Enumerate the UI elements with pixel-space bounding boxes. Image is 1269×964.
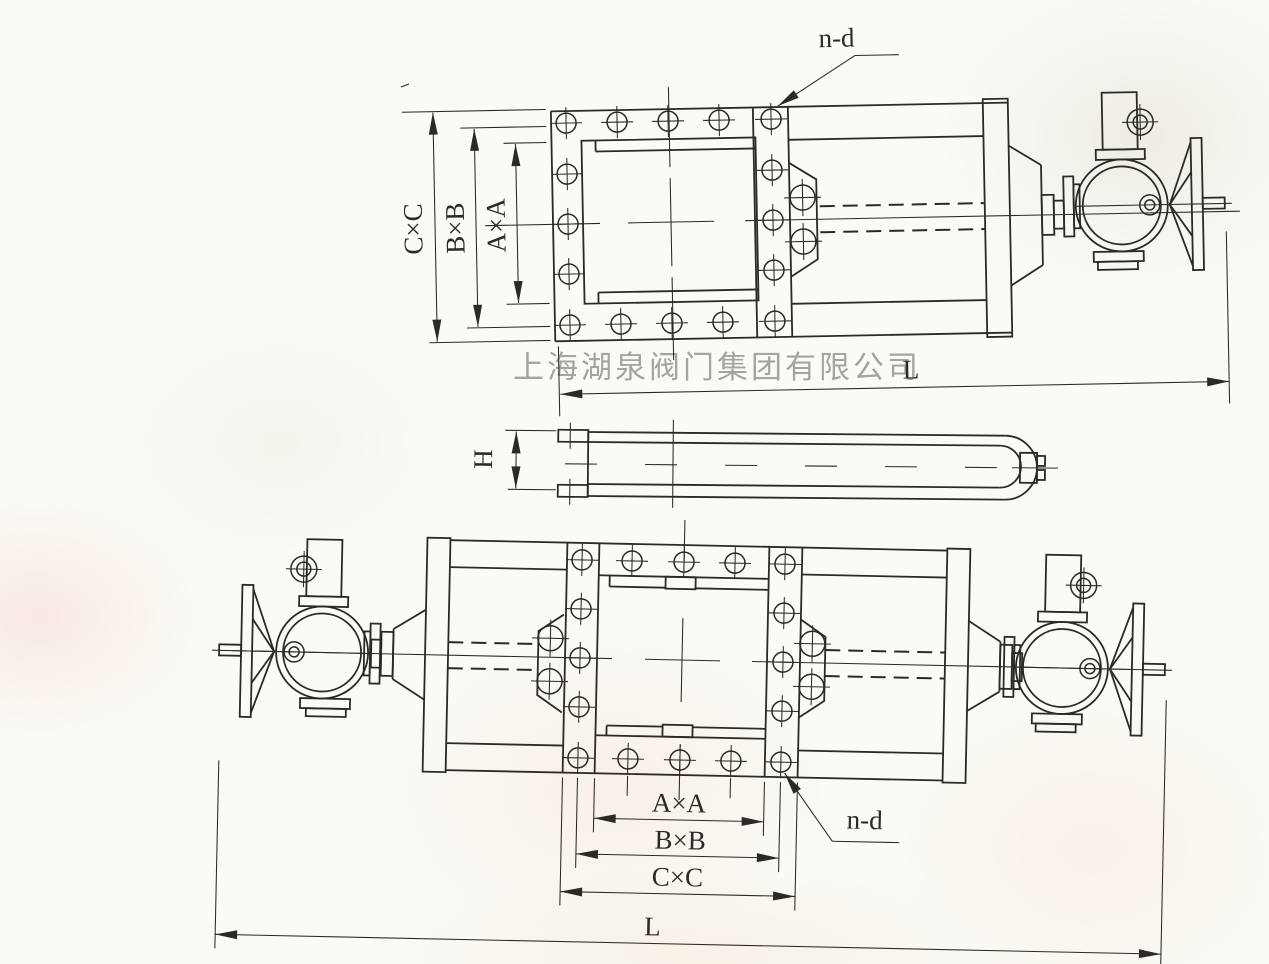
hole-centerline	[568, 208, 569, 240]
hole-centerline	[781, 746, 782, 778]
hole-centerline	[570, 309, 571, 341]
hole-centerline	[785, 548, 786, 580]
arrowhead	[560, 389, 582, 398]
hole-centerline	[569, 258, 570, 290]
dimension-line	[433, 113, 437, 342]
arrowhead	[511, 144, 520, 166]
hole-centerline	[672, 307, 673, 339]
hole-centerline	[773, 204, 774, 236]
dim-label-length-bottom: L	[644, 911, 661, 941]
hole-centerline	[774, 254, 775, 286]
actuator-left	[211, 537, 383, 719]
hole-centerline	[567, 158, 568, 190]
arrowhead	[432, 320, 441, 342]
gate-guide-tab	[665, 577, 695, 590]
hole-centerline	[775, 305, 776, 337]
dim-label-nd-bottom: n-d	[846, 805, 883, 836]
arrowhead	[428, 113, 437, 135]
threaded-stem	[825, 650, 945, 653]
dim-label-aa-top: A×A	[481, 198, 512, 253]
hole-centerline	[731, 745, 732, 777]
dim-label-aa-bottom: A×A	[652, 787, 707, 818]
arrowhead	[511, 466, 520, 488]
arrowhead	[1139, 949, 1161, 958]
hole-centerline	[783, 646, 784, 678]
hole-centerline	[680, 744, 681, 776]
arrowhead	[512, 431, 521, 453]
arrowhead	[757, 853, 779, 862]
hole-centerline	[723, 306, 724, 338]
hole-centerline	[581, 593, 582, 625]
threaded-stem	[448, 668, 538, 670]
gate-side-view: H	[468, 418, 1059, 511]
hole-centerline	[668, 105, 669, 137]
rounded-end-inner	[1000, 446, 1021, 488]
dim-label-height: H	[468, 449, 498, 469]
bolt-holes-bottom-view	[529, 543, 833, 779]
arrowhead	[576, 849, 598, 858]
dimension-line	[515, 144, 518, 303]
actuator-right	[1062, 90, 1233, 272]
bottom-front-view: A×A B×B C×C n-d L	[206, 510, 1175, 964]
hole-centerline	[579, 691, 580, 723]
arrowhead	[1207, 377, 1229, 386]
threaded-stem	[820, 229, 985, 232]
hole-centerline	[735, 547, 736, 579]
arrowhead	[470, 129, 479, 151]
threaded-stem	[448, 642, 538, 644]
scan-artifact	[401, 84, 409, 87]
hole-centerline	[803, 223, 804, 260]
hole-centerline	[632, 545, 633, 577]
hole-centerline	[772, 154, 773, 186]
valve-dimension-drawing: 上海湖泉阀门集团有限公司	[0, 0, 1269, 964]
hole-centerline	[617, 106, 618, 138]
dim-label-length-top: L	[902, 354, 919, 384]
arrowhead	[215, 930, 237, 939]
hole-centerline	[784, 597, 785, 629]
arrowhead	[514, 281, 523, 303]
hole-centerline	[578, 742, 579, 774]
dim-label-cc-top: C×C	[398, 203, 429, 255]
threaded-stem	[825, 676, 945, 679]
dim-label-cc-bottom: C×C	[652, 861, 704, 892]
dimension-lines-side	[511, 431, 520, 488]
arrowhead	[473, 305, 482, 327]
hole-centerline	[566, 107, 567, 139]
actuator-right	[1003, 554, 1175, 736]
hole-centerline	[782, 695, 783, 727]
arrowhead	[560, 887, 582, 896]
gate-centerline	[565, 464, 1012, 468]
arrowhead	[742, 817, 764, 826]
scanned-valve-drawing: 上海湖泉阀门集团有限公司	[0, 0, 1269, 964]
dim-label-bb-bottom: B×B	[654, 825, 706, 856]
gate-guide-tab	[662, 725, 692, 738]
hole-centerline	[621, 308, 622, 340]
watermark: 上海湖泉阀门集团有限公司	[513, 350, 921, 386]
dimension-line	[474, 129, 478, 327]
hole-centerline	[582, 544, 583, 576]
hole-centerline	[628, 743, 629, 775]
flange-tab	[558, 485, 588, 497]
dimension-line	[560, 892, 795, 897]
dim-label-bb-top: B×B	[440, 202, 471, 254]
hole-centerline	[719, 104, 720, 136]
arrowhead	[594, 814, 616, 823]
hole-centerline	[580, 642, 581, 674]
dimension-line	[594, 818, 764, 822]
hole-centerline	[802, 179, 803, 216]
flange-tab	[558, 430, 588, 442]
threaded-stem	[820, 203, 985, 206]
hole-centerline	[771, 103, 772, 135]
dimension-line	[215, 934, 1161, 954]
dim-label-nd-top: n-d	[818, 23, 855, 54]
hole-centerline	[684, 546, 685, 578]
end-plate	[983, 99, 1013, 337]
arrowhead	[773, 892, 795, 901]
